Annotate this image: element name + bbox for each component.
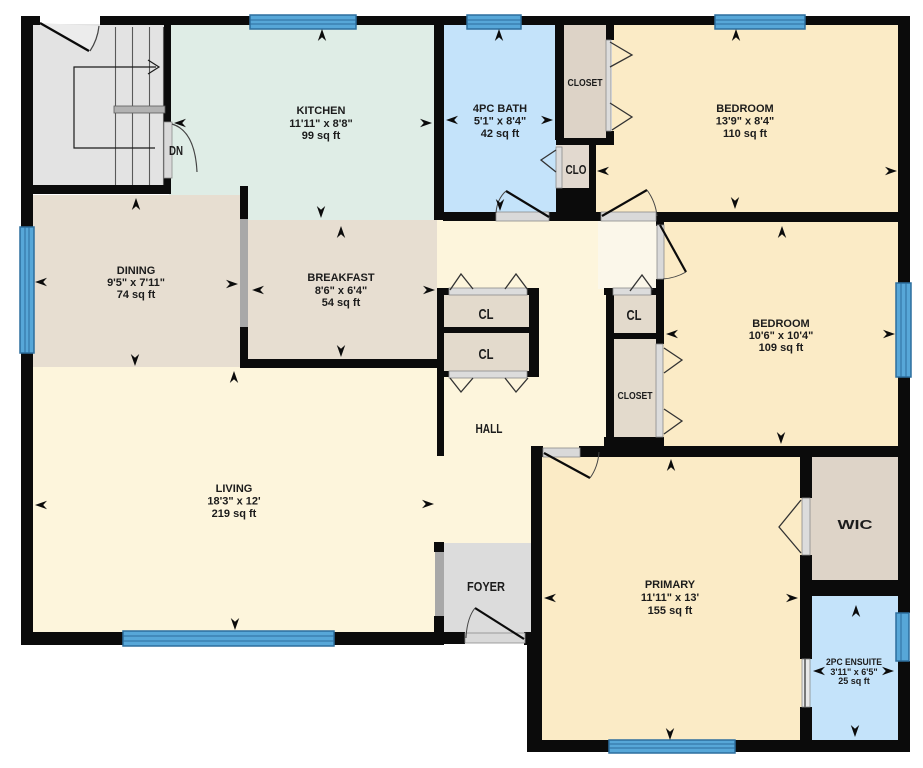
svg-text:11'11" x 8'8": 11'11" x 8'8" xyxy=(289,118,352,130)
svg-text:99 sq ft: 99 sq ft xyxy=(302,130,341,142)
svg-text:109 sq ft: 109 sq ft xyxy=(759,342,804,354)
svg-text:BEDROOM: BEDROOM xyxy=(752,318,809,330)
svg-text:CLOSET: CLOSET xyxy=(568,78,603,89)
svg-text:11'11" x 13': 11'11" x 13' xyxy=(641,592,700,604)
svg-text:155 sq ft: 155 sq ft xyxy=(648,605,693,617)
svg-text:4PC BATH: 4PC BATH xyxy=(473,103,527,115)
svg-text:54 sq ft: 54 sq ft xyxy=(322,297,361,309)
svg-text:110 sq ft: 110 sq ft xyxy=(723,128,767,140)
svg-text:PRIMARY: PRIMARY xyxy=(645,579,696,591)
svg-text:219 sq ft: 219 sq ft xyxy=(212,508,257,520)
svg-text:10'6" x 10'4": 10'6" x 10'4" xyxy=(749,330,814,342)
svg-text:DINING: DINING xyxy=(117,265,156,277)
svg-text:8'6" x 6'4": 8'6" x 6'4" xyxy=(315,285,367,297)
svg-text:FOYER: FOYER xyxy=(467,579,506,594)
svg-text:KITCHEN: KITCHEN xyxy=(297,105,346,117)
svg-text:25 sq ft: 25 sq ft xyxy=(838,676,870,686)
svg-text:BREAKFAST: BREAKFAST xyxy=(307,272,375,284)
svg-text:74 sq ft: 74 sq ft xyxy=(117,289,156,301)
svg-text:CLO: CLO xyxy=(566,162,587,177)
svg-text:CL: CL xyxy=(627,307,642,324)
svg-text:2PC ENSUITE: 2PC ENSUITE xyxy=(826,657,882,667)
svg-text:HALL: HALL xyxy=(476,421,503,436)
svg-text:CL: CL xyxy=(479,346,494,363)
svg-text:DN: DN xyxy=(169,143,183,158)
svg-text:18'3" x 12': 18'3" x 12' xyxy=(207,496,261,508)
svg-text:42 sq ft: 42 sq ft xyxy=(481,128,520,140)
svg-text:9'5" x 7'11": 9'5" x 7'11" xyxy=(107,277,165,289)
svg-text:LIVING: LIVING xyxy=(216,483,253,495)
svg-text:13'9" x 8'4": 13'9" x 8'4" xyxy=(716,116,774,128)
svg-text:BEDROOM: BEDROOM xyxy=(716,103,773,115)
svg-text:CL: CL xyxy=(479,306,494,323)
svg-text:WIC: WIC xyxy=(838,517,874,532)
svg-text:CLOSET: CLOSET xyxy=(618,391,653,402)
svg-text:5'1" x 8'4": 5'1" x 8'4" xyxy=(474,116,526,128)
